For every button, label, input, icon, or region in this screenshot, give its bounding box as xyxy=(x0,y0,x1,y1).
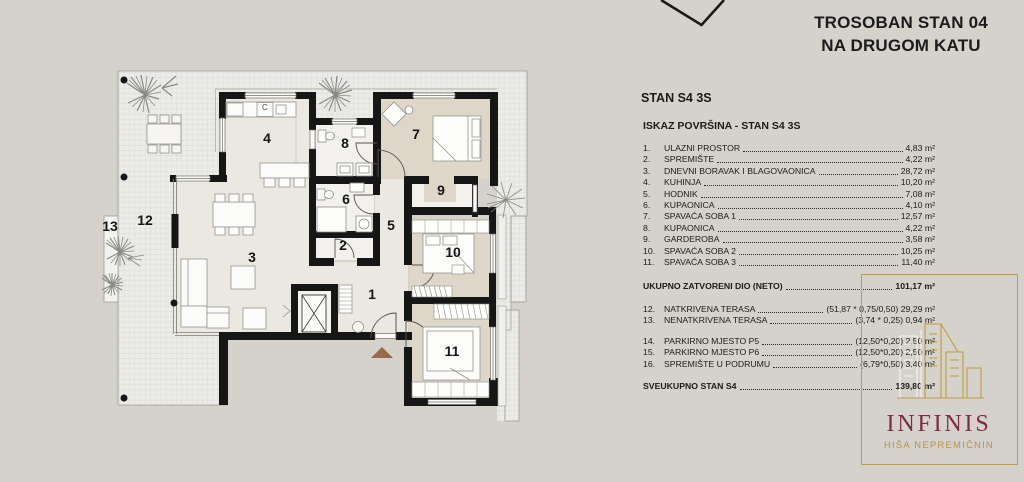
svg-text:3: 3 xyxy=(248,249,256,265)
svg-text:5: 5 xyxy=(387,217,395,233)
svg-text:9: 9 xyxy=(437,182,445,198)
svg-text:7: 7 xyxy=(412,126,420,142)
svg-text:2: 2 xyxy=(339,237,347,253)
svg-text:13: 13 xyxy=(102,218,118,234)
svg-text:6: 6 xyxy=(342,191,350,207)
svg-text:4: 4 xyxy=(263,130,271,146)
svg-text:10: 10 xyxy=(445,244,461,260)
svg-text:C: C xyxy=(262,103,268,112)
svg-text:1: 1 xyxy=(368,286,376,302)
svg-text:12: 12 xyxy=(137,212,153,228)
svg-text:11: 11 xyxy=(445,343,460,359)
svg-text:8: 8 xyxy=(341,135,349,151)
